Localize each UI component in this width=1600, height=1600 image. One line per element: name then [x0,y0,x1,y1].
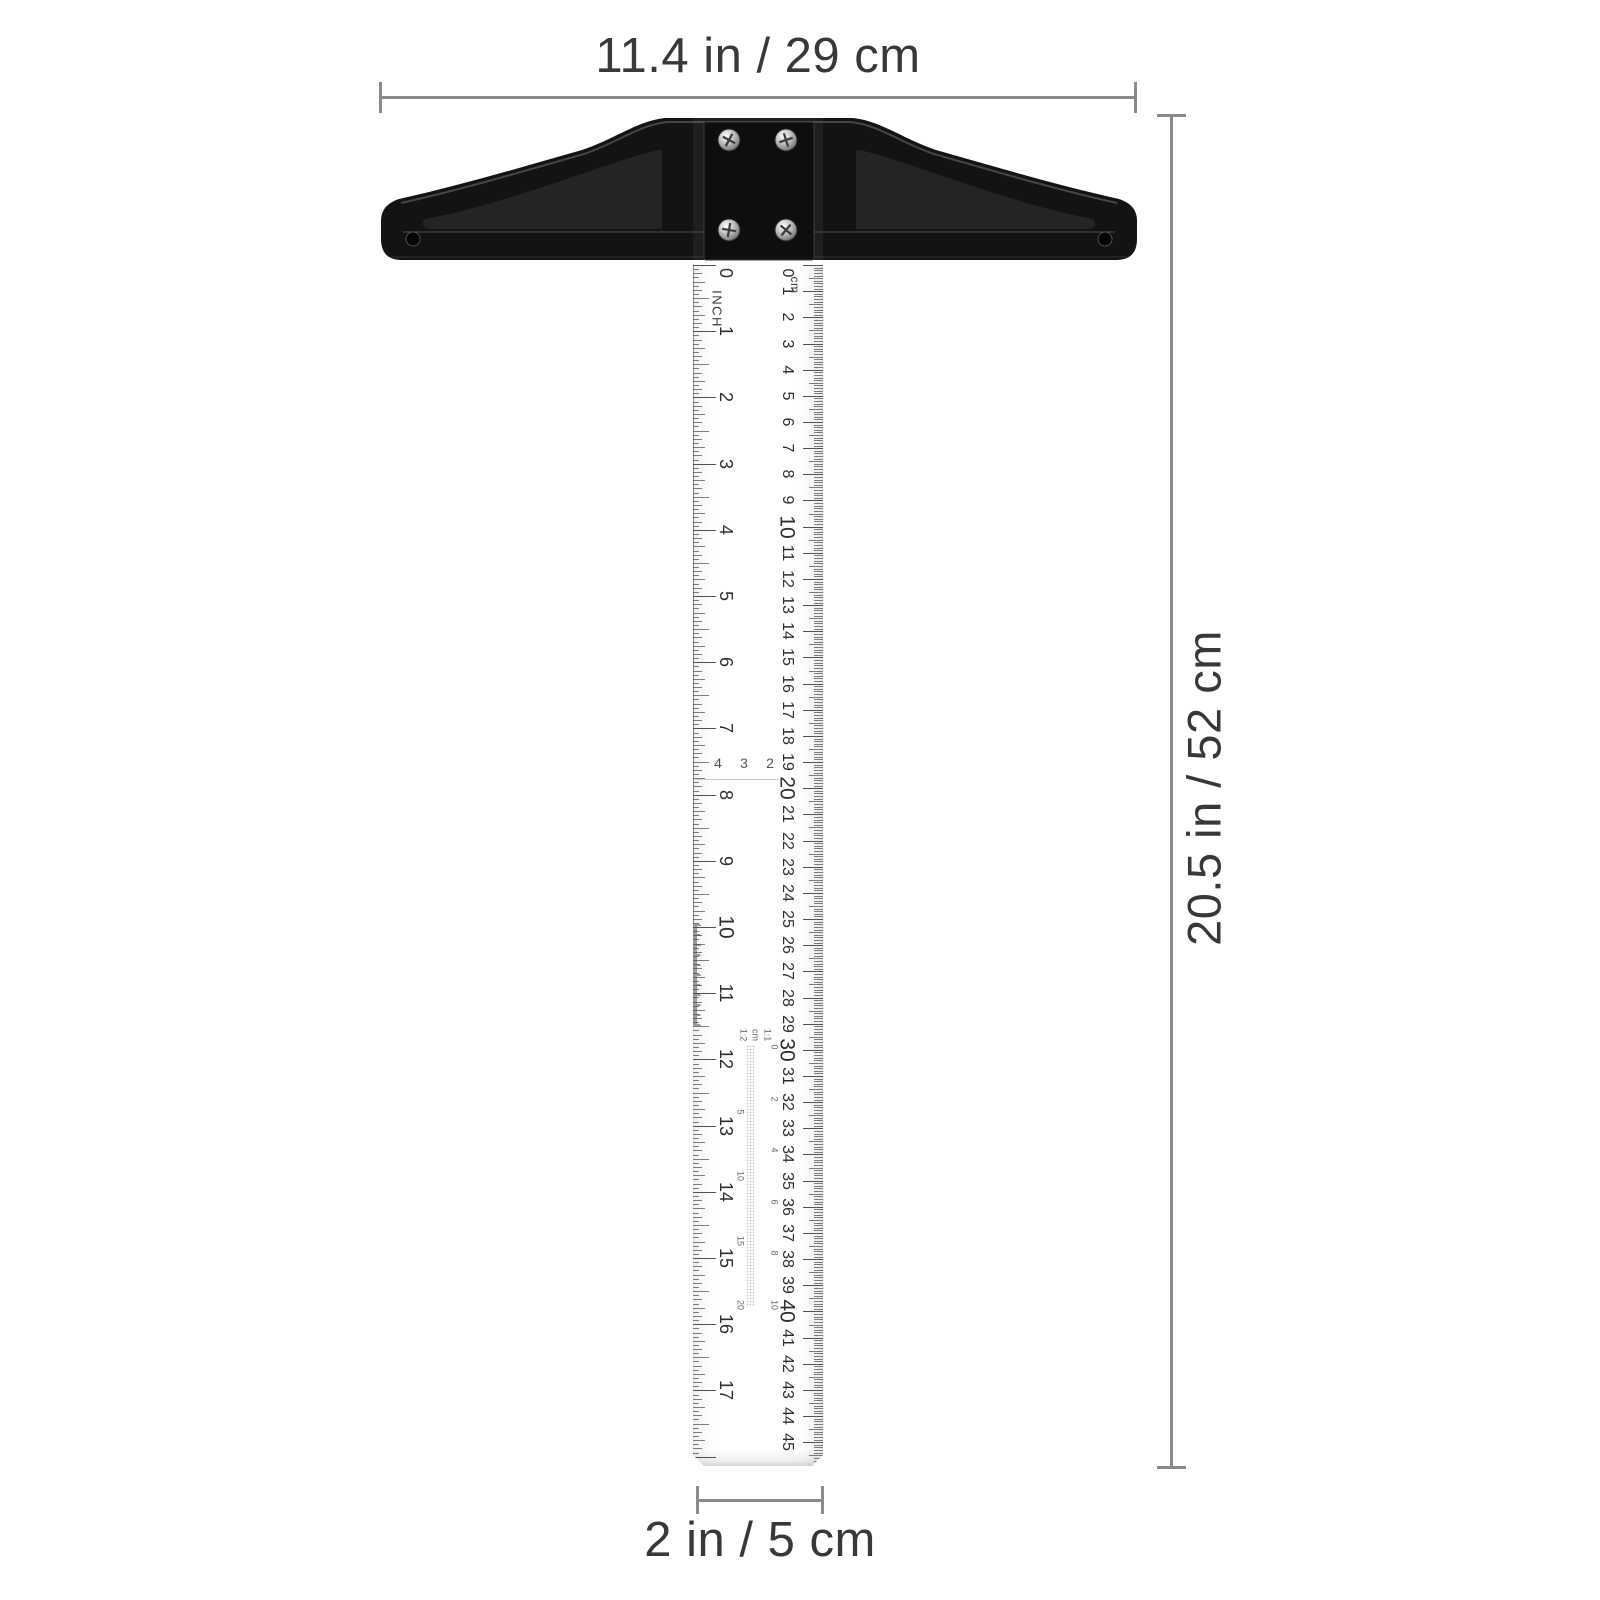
inch-tick [693,617,699,618]
cm-tick [814,1071,823,1072]
inch-tick [693,538,702,539]
cm-tick [809,749,823,750]
cm-tick [803,1050,823,1051]
cm-tick [814,1170,823,1171]
cm-tick [814,950,823,951]
mid-scale-number: 4 [714,756,722,770]
inch-tick [693,807,699,808]
inch-tick [693,530,716,531]
cm-tick [814,846,823,847]
inch-tick [693,1424,709,1425]
cm-number: 6 [779,418,795,427]
cm-tick [814,597,823,598]
inch-tick [693,1146,699,1147]
cm-tick [814,1217,823,1218]
inch-tick [693,282,705,283]
cm-tick [809,801,823,802]
cm-tick [814,909,823,910]
inch-tick [693,1407,705,1408]
cm-tick [814,1322,823,1323]
cm-tick [809,1455,823,1456]
inch-tick [693,286,699,287]
inch-tick [693,766,699,767]
cm-tick [814,1005,823,1006]
cm-tick [814,715,823,716]
cm-number: 34 [779,1145,795,1163]
cm-tick [814,1013,823,1014]
cm-tick [814,362,823,363]
inch-tick [693,567,699,568]
inch-number: 7 [717,723,735,733]
inch-tick [693,877,705,878]
cm-tick [814,584,823,585]
cm-tick [814,1432,823,1433]
inch-tick [693,1022,699,1023]
cm-tick [803,867,823,868]
cm-tick [814,459,823,460]
inch-tick [693,1291,709,1292]
cm-number: 25 [779,910,795,928]
cm-tick [814,1045,823,1046]
cm-tick [814,1400,823,1401]
inch-tick [693,1246,699,1247]
cm-tick [809,1011,823,1012]
inch-tick [693,1357,709,1358]
cm-tick [803,448,823,449]
cm-tick [814,521,823,522]
cm-tick [814,268,823,269]
cm-tick [814,807,823,808]
cm-tick [814,380,823,381]
cm-tick [814,652,823,653]
cm-tick [814,1230,823,1231]
inch-tick [693,1370,699,1371]
inch-tick [693,1059,716,1060]
cm-tick [814,1419,823,1420]
cm-tick [809,304,823,305]
cm-tick [814,686,823,687]
cm-number: 41 [779,1329,795,1347]
cm-tick [814,451,823,452]
cm-tick [814,1039,823,1040]
cm-tick [814,663,823,664]
inch-tick [693,890,699,891]
cm-tick [814,289,823,290]
cm-tick [814,1086,823,1087]
inch-number: 14 [717,1182,735,1202]
cm-tick [814,924,823,925]
inch-tick [693,559,699,560]
inch-tick [693,745,705,746]
inch-tick [693,1126,716,1127]
cm-tick [814,1107,823,1108]
cm-tick [814,1283,823,1284]
inch-tick [693,340,702,341]
inch-tick [693,882,699,883]
cm-tick [814,1032,823,1033]
cm-tick [814,1330,823,1331]
height-dimension-label: 20.5 in / 52 cm [1177,630,1232,946]
inch-tick [693,848,699,849]
cm-tick [814,1361,823,1362]
inch-tick [693,1419,699,1420]
cm-tick [814,770,823,771]
cm-tick [814,1413,823,1414]
cm-tick [814,1332,823,1333]
inch-tick [693,1366,702,1367]
cm-tick [814,1081,823,1082]
cm-tick [814,542,823,543]
cm-tick [814,1000,823,1001]
cm-tick [803,657,823,658]
inch-tick [693,840,699,841]
cm-tick [814,623,823,624]
cm-tick [809,827,823,828]
inch-tick [693,774,699,775]
cm-tick [814,1110,823,1111]
cm-tick [814,820,823,821]
inch-tick [693,675,699,676]
inch-number: 15 [717,1248,735,1268]
inch-tick [693,1428,699,1429]
cm-tick [814,953,823,954]
inch-tick [693,344,699,345]
cm-tick [814,506,823,507]
cm-tick [814,1066,823,1067]
cm-tick [814,1264,823,1265]
cm-tick [803,788,823,789]
cm-tick [814,323,823,324]
cm-tick [814,681,823,682]
cm-tick [814,974,823,975]
cm-tick [814,707,823,708]
inch-tick [693,1010,705,1011]
half-scale-right-number: 4 [770,1148,779,1153]
inch-tick [693,294,699,295]
cm-tick [809,958,823,959]
tsquare-head [377,113,1141,265]
product-diagram: 11.4 in / 29 cm 20.5 in / 52 cm 2 in / 5… [0,0,1600,1600]
inch-tick [693,331,716,332]
cm-tick [814,885,823,886]
cm-tick [809,1089,823,1090]
inch-tick [693,815,699,816]
cm-tick [814,391,823,392]
cm-tick [814,1374,823,1375]
cm-tick [814,600,823,601]
cm-tick [814,1356,823,1357]
cm-number: 43 [779,1381,795,1399]
cm-tick [814,1447,823,1448]
cm-tick [814,1134,823,1135]
cm-tick [814,516,823,517]
cm-tick [814,1280,823,1281]
inch-tick [693,443,699,444]
cm-number: 19 [779,753,795,771]
cm-tick [814,733,823,734]
cm-tick [803,265,823,266]
cm-tick [814,927,823,928]
cm-tick [814,621,823,622]
inch-tick [693,637,702,638]
cm-tick [814,746,823,747]
inch-tick [693,658,699,659]
cm-tick [809,854,823,855]
cm-tick [814,464,823,465]
inch-tick [693,377,699,378]
blade-width-cap-right [821,1486,824,1514]
inch-tick [693,671,702,672]
cm-tick [814,786,823,787]
inch-tick [693,662,716,663]
cm-tick [814,1186,823,1187]
inch-tick [693,468,699,469]
cm-tick [814,328,823,329]
cm-tick [814,1026,823,1027]
cm-tick [803,370,823,371]
inch-tick [693,865,699,866]
cm-number: 17 [779,701,795,719]
cm-tick [809,566,823,567]
inch-tick [693,1208,705,1209]
cm-tick [814,307,823,308]
cm-tick [814,1100,823,1101]
cm-tick [809,697,823,698]
inch-tick [693,712,705,713]
inch-tick [693,1159,709,1160]
inch-tick [693,1299,702,1300]
cm-unit-label: cm [789,277,801,294]
cm-tick [814,537,823,538]
inch-tick [693,898,699,899]
cm-tick [814,752,823,753]
inch-tick [693,1444,699,1445]
cm-tick [814,780,823,781]
cm-tick [814,759,823,760]
cm-tick [814,1427,823,1428]
inch-tick [693,522,702,523]
inch-tick [693,968,702,969]
cm-number: 35 [779,1172,795,1190]
inch-tick [693,451,699,452]
cm-tick [814,650,823,651]
inch-number: 10 [716,915,737,938]
inch-tick [693,1453,699,1454]
inch-tick [693,269,699,270]
cm-tick [803,317,823,318]
inch-tick [693,1390,716,1391]
cm-tick [814,1052,823,1053]
cm-tick [814,354,823,355]
inch-tick [693,513,705,514]
cm-tick [814,888,823,889]
cm-tick [809,932,823,933]
inch-tick [693,1262,699,1263]
inch-tick [693,1328,699,1329]
cm-tick [814,702,823,703]
cm-tick [814,270,823,271]
inch-tick [693,464,716,465]
inch-tick [693,1386,699,1387]
inch-number: 4 [717,525,735,535]
inch-tick [693,633,699,634]
cm-tick [814,1196,823,1197]
inch-tick [693,786,702,787]
inch-tick [693,927,716,928]
inch-tick [693,753,702,754]
cm-tick [814,1309,823,1310]
cm-tick [809,723,823,724]
cm-tick [803,1364,823,1365]
cm-tick [814,665,823,666]
cm-tick [814,1120,823,1121]
cm-number: 8 [779,470,795,479]
cm-tick [814,482,823,483]
cm-tick [803,1259,823,1260]
inch-tick [693,1395,699,1396]
cm-tick [814,1453,823,1454]
cm-tick [803,1416,823,1417]
cm-tick [814,1345,823,1346]
inch-tick [693,604,702,605]
cm-tick [814,1018,823,1019]
cm-tick [814,283,823,284]
inch-tick [693,1055,699,1056]
cm-tick [814,1183,823,1184]
cm-tick [814,1304,823,1305]
cm-tick [803,893,823,894]
cm-number: 13 [779,596,795,614]
inch-tick [693,497,709,498]
inch-tick [693,327,699,328]
cm-tick [814,668,823,669]
inch-tick [693,948,699,949]
inch-tick [693,621,702,622]
cm-tick [814,346,823,347]
cm-tick [809,1194,823,1195]
inch-tick [693,1196,699,1197]
cm-tick [814,1254,823,1255]
inch-tick [693,857,699,858]
cm-tick [814,1228,823,1229]
cm-number: 23 [779,858,795,876]
cm-tick [814,1238,823,1239]
mid-scale-number: 3 [740,756,748,770]
cm-tick [814,898,823,899]
inch-tick [693,1242,705,1243]
inch-tick [693,480,705,481]
inch-tick [693,1088,699,1089]
cm-tick [803,553,823,554]
inch-tick [693,931,699,932]
inch-tick [693,302,699,303]
cm-tick [814,911,823,912]
cm-tick [803,971,823,972]
height-dimension-line [1170,115,1173,1468]
inch-tick [693,1270,699,1271]
cm-tick [814,1241,823,1242]
cm-tick [814,725,823,726]
inch-tick [693,1043,705,1044]
cm-tick [803,500,823,501]
cm-tick [814,916,823,917]
cm-tick [814,472,823,473]
cm-tick [814,1060,823,1061]
inch-tick [693,1093,709,1094]
cm-tick [814,1424,823,1425]
cm-tick [814,1055,823,1056]
cm-number: 22 [779,832,795,850]
cm-number: 44 [779,1407,795,1425]
cm-tick [814,1340,823,1341]
cm-tick [809,514,823,515]
cm-tick [809,671,823,672]
cm-tick [814,778,823,779]
inch-tick [693,1076,705,1077]
inch-tick [693,277,699,278]
inch-tick [693,1304,699,1305]
cm-tick [814,571,823,572]
blade-width-dimension-label: 2 in / 5 cm [560,1512,960,1568]
cm-tick [814,1079,823,1080]
cm-number: 40 [777,1300,798,1323]
cm-tick [814,574,823,575]
inch-tick [693,1382,702,1383]
inch-tick [693,1101,702,1102]
inch-number: 11 [717,984,735,1003]
cm-tick [814,498,823,499]
cm-tick [803,1233,823,1234]
inch-tick [693,1018,702,1019]
inch-tick [693,1200,702,1201]
cm-tick [814,1249,823,1250]
screw-icon [775,219,797,241]
cm-tick [814,1458,823,1459]
blade-width-dimension-line [697,1499,823,1502]
cm-tick [809,1298,823,1299]
cm-tick [803,605,823,606]
cm-tick [814,1236,823,1237]
cm-tick [814,757,823,758]
cm-tick [814,302,823,303]
cm-tick [814,809,823,810]
inch-tick [693,381,705,382]
inch-tick [693,1035,702,1036]
cm-tick [803,1102,823,1103]
cm-tick [814,859,823,860]
cm-tick [814,694,823,695]
cm-tick [814,1421,823,1422]
inch-tick [693,534,699,535]
cm-tick [814,443,823,444]
inch-tick [693,1213,699,1214]
cm-tick [814,1385,823,1386]
half-scale-header: 1:2 [739,1029,748,1042]
inch-tick [693,1002,702,1003]
inch-number: 9 [717,856,735,866]
cm-tick [814,914,823,915]
cm-tick [803,1076,823,1077]
cm-tick [814,875,823,876]
inch-tick [693,828,709,829]
width-dimension-cap-left [379,82,382,113]
cm-tick [814,817,823,818]
cm-tick [814,977,823,978]
cm-tick [814,961,823,962]
cm-tick [814,312,823,313]
cm-number: 7 [779,444,795,453]
cm-tick [814,856,823,857]
